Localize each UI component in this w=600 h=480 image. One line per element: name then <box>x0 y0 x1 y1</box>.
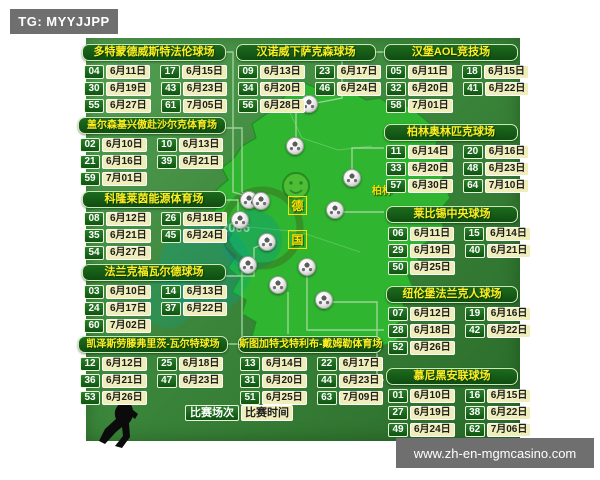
match-number: 62 <box>465 423 485 437</box>
match-entry: 346月20日 <box>238 82 305 96</box>
stadium-title: 法兰克福瓦尔德球场 <box>82 264 226 281</box>
match-date: 6月11日 <box>408 65 452 79</box>
match-entry: 176月15日 <box>160 65 227 79</box>
stadium-title: 柏林奥林匹克球场 <box>384 124 518 141</box>
match-entry: 316月20日 <box>240 374 307 388</box>
match-row: 597月01日 <box>78 172 226 186</box>
match-date: 6月17日 <box>339 357 384 371</box>
match-entry: 336月20日 <box>386 162 453 176</box>
legend-match-number: 比赛场次 <box>185 405 239 421</box>
match-date: 6月23日 <box>485 162 530 176</box>
match-date: 6月14日 <box>262 357 307 371</box>
match-date: 6月14日 <box>486 227 531 241</box>
match-number: 08 <box>84 212 104 226</box>
match-entry: 366月21日 <box>80 374 147 388</box>
match-number: 39 <box>157 155 177 169</box>
match-row: 136月14日226月17日 <box>238 357 382 371</box>
match-row: 066月11日156月14日 <box>386 227 518 241</box>
match-entry: 196月16日 <box>465 307 532 321</box>
stadium-title: 凯泽斯劳滕弗里茨-瓦尔特球场 <box>78 336 228 353</box>
match-row: 046月11日176月15日 <box>82 65 226 79</box>
match-row: 126月12日256月18日 <box>78 357 228 371</box>
match-number: 14 <box>161 285 181 299</box>
match-number: 25 <box>157 357 177 371</box>
match-date: 6月23日 <box>183 82 228 96</box>
match-number: 38 <box>465 406 485 420</box>
match-number: 64 <box>463 179 483 193</box>
match-date: 6月22日 <box>487 324 532 338</box>
match-date: 7月01日 <box>102 172 147 186</box>
match-date: 6月13日 <box>179 138 224 152</box>
match-number: 02 <box>80 138 100 152</box>
match-date: 6月19日 <box>410 406 455 420</box>
soccer-ball-marker-frankfurt <box>258 233 276 251</box>
match-row: 316月20日446月23日 <box>238 374 382 388</box>
match-entry: 576月30日 <box>386 179 453 193</box>
match-date: 6月24日 <box>183 229 228 243</box>
match-date: 6月13日 <box>260 65 305 79</box>
match-date: 6月16日 <box>102 155 147 169</box>
match-number: 26 <box>161 212 181 226</box>
match-entry: 116月14日 <box>386 145 453 159</box>
stadium-card-hamburg: 汉堡AOL竞技场 056月11日186月15日326月20日416月22日587… <box>384 44 518 113</box>
match-number: 56 <box>238 99 258 113</box>
match-date: 6月16日 <box>487 307 532 321</box>
match-date: 6月25日 <box>410 261 455 275</box>
match-number: 15 <box>464 227 484 241</box>
match-date: 6月12日 <box>410 307 455 321</box>
match-number: 20 <box>463 145 483 159</box>
match-row: 326月20日416月22日 <box>384 82 518 96</box>
match-date: 7月01日 <box>408 99 453 113</box>
match-entry: 637月09日 <box>317 391 384 405</box>
stadium-card-kaiserslautern: 凯泽斯劳滕弗里茨-瓦尔特球场 126月12日256月18日366月21日476月… <box>78 336 228 405</box>
match-date: 7月10日 <box>485 179 530 193</box>
match-number: 27 <box>388 406 408 420</box>
match-number: 61 <box>161 99 181 113</box>
match-date: 6月23日 <box>339 374 384 388</box>
match-entry: 456月24日 <box>161 229 228 243</box>
match-row: 346月20日466月24日 <box>236 82 376 96</box>
match-entry: 566月28日 <box>238 99 305 113</box>
match-number: 24 <box>84 302 104 316</box>
match-entry: 356月21日 <box>84 229 151 243</box>
match-date: 6月20日 <box>408 82 453 96</box>
stadium-match-list: 016月10日166月15日276月19日386月22日496月24日627月0… <box>386 389 518 437</box>
soccer-ball-marker-dortmund <box>252 192 270 210</box>
stadium-card-dortmund: 多特蒙德威斯特法伦球场 046月11日176月15日306月19日436月23日… <box>82 44 226 113</box>
match-row: 026月10日106月13日 <box>78 138 226 152</box>
site-watermark: www.zh-en-mgmcasino.com <box>396 438 594 468</box>
match-entry: 076月12日 <box>388 307 455 321</box>
match-entry: 016月10日 <box>388 389 455 403</box>
match-number: 45 <box>161 229 181 243</box>
match-entry: 106月13日 <box>157 138 224 152</box>
match-number: 33 <box>386 162 406 176</box>
legend: 比赛场次 比赛时间 <box>185 405 293 421</box>
stadium-title: 盖尔森基兴傲赴沙尔克体育场 <box>78 117 226 134</box>
stadium-card-leipzig: 莱比锡中央球场 066月11日156月14日296月19日406月21日506月… <box>386 206 518 275</box>
match-date: 6月20日 <box>262 374 307 388</box>
stadium-match-list: 026月10日106月13日216月16日396月21日597月01日 <box>78 138 226 186</box>
match-number: 12 <box>80 357 100 371</box>
country-label-char: 国 <box>288 230 307 249</box>
match-date: 6月10日 <box>410 389 455 403</box>
match-entry: 647月10日 <box>463 179 530 193</box>
match-number: 57 <box>386 179 406 193</box>
stadium-match-list: 136月14日226月17日316月20日446月23日516月25日637月0… <box>238 357 382 405</box>
match-entry: 216月16日 <box>80 155 147 169</box>
match-entry: 386月22日 <box>465 406 532 420</box>
match-date: 6月24日 <box>410 423 455 437</box>
match-row: 276月19日386月22日 <box>386 406 518 420</box>
match-row: 036月10日146月13日 <box>82 285 226 299</box>
match-entry: 046月11日 <box>84 65 150 79</box>
match-entry: 036月10日 <box>84 285 151 299</box>
match-entry: 166月15日 <box>465 389 532 403</box>
match-number: 60 <box>84 319 104 333</box>
match-entry: 206月16日 <box>463 145 530 159</box>
match-number: 06 <box>388 227 408 241</box>
match-entry: 146月13日 <box>161 285 228 299</box>
match-entry: 597月01日 <box>80 172 147 186</box>
match-row: 076月12日196月16日 <box>386 307 518 321</box>
stadium-card-hannover: 汉诺威下萨克森球场 096月13日236月17日346月20日466月24日56… <box>236 44 376 113</box>
match-date: 6月16日 <box>485 145 530 159</box>
match-entry: 096月13日 <box>238 65 305 79</box>
match-date: 6月10日 <box>106 285 151 299</box>
match-number: 55 <box>84 99 104 113</box>
legend-match-time: 比赛时间 <box>241 405 293 421</box>
match-date: 6月17日 <box>106 302 151 316</box>
stadium-match-list: 036月10日146月13日246月17日376月22日607月02日 <box>82 285 226 333</box>
match-date: 6月30日 <box>408 179 453 193</box>
stadium-card-munich: 慕尼黑安联球场 016月10日166月15日276月19日386月22日496月… <box>386 368 518 437</box>
match-date: 6月17日 <box>337 65 382 79</box>
match-date: 6月15日 <box>182 65 227 79</box>
match-row: 056月11日186月15日 <box>384 65 518 79</box>
match-row: 576月30日647月10日 <box>384 179 518 193</box>
stadium-match-list: 116月14日206月16日336月20日486月23日576月30日647月1… <box>384 145 518 193</box>
soccer-ball-marker-cologne <box>231 211 249 229</box>
stadium-card-berlin: 柏林奥林匹克球场 116月14日206月16日336月20日486月23日576… <box>384 124 518 193</box>
match-row: 496月24日627月06日 <box>386 423 518 437</box>
match-row: 536月26日 <box>78 391 228 405</box>
match-number: 22 <box>317 357 337 371</box>
match-entry: 546月27日 <box>84 246 151 260</box>
match-number: 03 <box>84 285 104 299</box>
stadium-match-list: 086月12日266月18日356月21日456月24日546月27日 <box>82 212 226 260</box>
match-number: 37 <box>161 302 181 316</box>
stadium-title: 汉堡AOL竞技场 <box>384 44 518 61</box>
match-number: 16 <box>465 389 485 403</box>
match-entry: 056月11日 <box>386 65 452 79</box>
match-row: 096月13日236月17日 <box>236 65 376 79</box>
match-date: 6月18日 <box>179 357 224 371</box>
match-date: 6月11日 <box>106 65 150 79</box>
stadium-title: 汉诺威下萨克森球场 <box>236 44 376 61</box>
match-date: 6月21日 <box>487 244 532 258</box>
match-date: 6月10日 <box>102 138 147 152</box>
match-number: 34 <box>238 82 258 96</box>
match-number: 43 <box>161 82 181 96</box>
match-number: 10 <box>157 138 177 152</box>
country-label-char: 德 <box>288 196 307 215</box>
match-number: 54 <box>84 246 104 260</box>
match-number: 04 <box>84 65 104 79</box>
match-date: 6月21日 <box>102 374 147 388</box>
soccer-ball-marker-berlin <box>343 169 361 187</box>
match-number: 36 <box>80 374 100 388</box>
match-entry: 156月14日 <box>464 227 531 241</box>
match-row: 546月27日 <box>82 246 226 260</box>
match-number: 35 <box>84 229 104 243</box>
match-number: 01 <box>388 389 408 403</box>
match-row: 607月02日 <box>82 319 226 333</box>
match-entry: 406月21日 <box>465 244 532 258</box>
match-number: 17 <box>160 65 180 79</box>
match-number: 53 <box>80 391 100 405</box>
soccer-ball-marker-hannover <box>286 137 304 155</box>
match-entry: 486月23日 <box>463 162 530 176</box>
match-number: 40 <box>465 244 485 258</box>
match-number: 05 <box>386 65 406 79</box>
match-row: 306月19日436月23日 <box>82 82 226 96</box>
match-date: 6月15日 <box>484 65 529 79</box>
stadium-title: 多特蒙德威斯特法伦球场 <box>82 44 226 61</box>
match-entry: 026月10日 <box>80 138 147 152</box>
match-number: 13 <box>240 357 260 371</box>
match-number: 18 <box>462 65 482 79</box>
soccer-ball-marker-kaiserslautern <box>239 256 257 274</box>
match-entry: 246月17日 <box>84 302 151 316</box>
soccer-ball-marker-stuttgart <box>269 276 287 294</box>
match-number: 29 <box>388 244 408 258</box>
match-date: 6月26日 <box>410 341 455 355</box>
soccer-ball-marker-munich <box>315 291 333 309</box>
match-number: 11 <box>386 145 406 159</box>
match-date: 6月27日 <box>106 246 151 260</box>
match-row: 296月19日406月21日 <box>386 244 518 258</box>
match-entry: 376月22日 <box>161 302 228 316</box>
match-number: 58 <box>386 99 406 113</box>
match-row: 516月25日637月09日 <box>238 391 382 405</box>
match-entry: 587月01日 <box>386 99 453 113</box>
match-row: 246月17日376月22日 <box>82 302 226 316</box>
match-number: 23 <box>315 65 335 79</box>
match-date: 7月09日 <box>339 391 384 405</box>
match-number: 28 <box>388 324 408 338</box>
match-date: 6月28日 <box>260 99 305 113</box>
match-row: 016月10日166月15日 <box>386 389 518 403</box>
match-date: 6月12日 <box>102 357 147 371</box>
match-date: 6月12日 <box>106 212 151 226</box>
match-entry: 426月22日 <box>465 324 532 338</box>
stadium-title: 莱比锡中央球场 <box>386 206 518 223</box>
match-entry: 536月26日 <box>80 391 147 405</box>
match-date: 7月02日 <box>106 319 151 333</box>
stadium-match-list: 066月11日156月14日296月19日406月21日506月25日 <box>386 227 518 275</box>
match-date: 6月21日 <box>106 229 151 243</box>
match-date: 6月22日 <box>485 82 530 96</box>
match-number: 52 <box>388 341 408 355</box>
match-entry: 286月18日 <box>388 324 455 338</box>
match-date: 6月27日 <box>106 99 151 113</box>
stadium-match-list: 096月13日236月17日346月20日466月24日566月28日 <box>236 65 376 113</box>
soccer-ball-marker-leipzig <box>326 201 344 219</box>
match-row: 086月12日266月18日 <box>82 212 226 226</box>
match-date: 6月21日 <box>179 155 224 169</box>
match-row: 116月14日206月16日 <box>384 145 518 159</box>
match-row: 587月01日 <box>384 99 518 113</box>
match-entry: 276月19日 <box>388 406 455 420</box>
stadium-title: 纽伦堡法兰克人球场 <box>386 286 518 303</box>
match-entry: 066月11日 <box>388 227 454 241</box>
match-entry: 136月14日 <box>240 357 307 371</box>
stadium-card-stuttgart: 斯图加特戈特利布-戴姆勒体育场 136月14日226月17日316月20日446… <box>238 336 382 405</box>
match-entry: 556月27日 <box>84 99 151 113</box>
match-number: 47 <box>157 374 177 388</box>
poster: TG: MYYJJPP 2006 <box>0 0 600 480</box>
match-entry: 236月17日 <box>315 65 382 79</box>
soccer-ball-marker-nuremberg <box>298 258 316 276</box>
match-number: 32 <box>386 82 406 96</box>
match-date: 6月18日 <box>410 324 455 338</box>
match-number: 09 <box>238 65 258 79</box>
match-date: 6月20日 <box>408 162 453 176</box>
match-date: 6月22日 <box>487 406 532 420</box>
match-date: 6月18日 <box>183 212 228 226</box>
match-entry: 296月19日 <box>388 244 455 258</box>
match-number: 44 <box>317 374 337 388</box>
match-entry: 466月24日 <box>315 82 382 96</box>
match-date: 6月20日 <box>260 82 305 96</box>
stadium-match-list: 046月11日176月15日306月19日436月23日556月27日617月0… <box>82 65 226 113</box>
match-number: 42 <box>465 324 485 338</box>
match-number: 59 <box>80 172 100 186</box>
match-number: 63 <box>317 391 337 405</box>
match-number: 41 <box>463 82 483 96</box>
stadium-title: 慕尼黑安联球场 <box>386 368 518 385</box>
match-entry: 416月22日 <box>463 82 530 96</box>
match-entry: 086月12日 <box>84 212 151 226</box>
match-row: 556月27日617月05日 <box>82 99 226 113</box>
match-date: 6月26日 <box>102 391 147 405</box>
match-row: 216月16日396月21日 <box>78 155 226 169</box>
match-entry: 256月18日 <box>157 357 224 371</box>
match-date: 6月19日 <box>410 244 455 258</box>
stadium-match-list: 056月11日186月15日326月20日416月22日587月01日 <box>384 65 518 113</box>
match-row: 356月21日456月24日 <box>82 229 226 243</box>
stadium-title: 科隆莱茵能源体育场 <box>82 191 226 208</box>
match-entry: 186月15日 <box>462 65 529 79</box>
match-entry: 266月18日 <box>161 212 228 226</box>
stadium-card-nuremberg: 纽伦堡法兰克人球场 076月12日196月16日286月18日426月22日52… <box>386 286 518 355</box>
match-number: 31 <box>240 374 260 388</box>
tg-badge: TG: MYYJJPP <box>10 9 118 34</box>
match-date: 7月05日 <box>183 99 228 113</box>
match-number: 50 <box>388 261 408 275</box>
match-date: 6月23日 <box>179 374 224 388</box>
match-date: 6月25日 <box>262 391 307 405</box>
match-date: 6月13日 <box>183 285 228 299</box>
match-number: 48 <box>463 162 483 176</box>
match-number: 49 <box>388 423 408 437</box>
stadium-card-cologne: 科隆莱茵能源体育场 086月12日266月18日356月21日456月24日54… <box>82 191 226 260</box>
match-row: 506月25日 <box>386 261 518 275</box>
match-number: 21 <box>80 155 100 169</box>
match-number: 46 <box>315 82 335 96</box>
match-number: 07 <box>388 307 408 321</box>
match-entry: 226月17日 <box>317 357 384 371</box>
stadium-title: 斯图加特戈特利布-戴姆勒体育场 <box>238 336 382 353</box>
match-number: 51 <box>240 391 260 405</box>
match-entry: 627月06日 <box>465 423 532 437</box>
match-entry: 446月23日 <box>317 374 384 388</box>
match-entry: 476月23日 <box>157 374 224 388</box>
match-entry: 306月19日 <box>84 82 151 96</box>
match-date: 7月06日 <box>487 423 532 437</box>
match-row: 566月28日 <box>236 99 376 113</box>
match-row: 366月21日476月23日 <box>78 374 228 388</box>
match-entry: 607月02日 <box>84 319 151 333</box>
stadium-match-list: 126月12日256月18日366月21日476月23日536月26日 <box>78 357 228 405</box>
match-date: 6月11日 <box>410 227 454 241</box>
match-date: 6月22日 <box>183 302 228 316</box>
match-entry: 496月24日 <box>388 423 455 437</box>
stadium-card-gelsenkirchen: 盖尔森基兴傲赴沙尔克体育场 026月10日106月13日216月16日396月2… <box>78 117 226 186</box>
match-number: 19 <box>465 307 485 321</box>
match-row: 526月26日 <box>386 341 518 355</box>
match-entry: 516月25日 <box>240 391 307 405</box>
match-row: 286月18日426月22日 <box>386 324 518 338</box>
stadium-card-frankfurt: 法兰克福瓦尔德球场 036月10日146月13日246月17日376月22日60… <box>82 264 226 333</box>
stadium-match-list: 076月12日196月16日286月18日426月22日526月26日 <box>386 307 518 355</box>
match-entry: 326月20日 <box>386 82 453 96</box>
match-entry: 617月05日 <box>161 99 228 113</box>
match-row: 336月20日486月23日 <box>384 162 518 176</box>
match-date: 6月19日 <box>106 82 151 96</box>
match-entry: 126月12日 <box>80 357 147 371</box>
match-number: 30 <box>84 82 104 96</box>
match-entry: 526月26日 <box>388 341 455 355</box>
match-entry: 506月25日 <box>388 261 455 275</box>
match-date: 6月14日 <box>408 145 453 159</box>
match-date: 6月15日 <box>487 389 532 403</box>
match-date: 6月24日 <box>337 82 382 96</box>
match-entry: 396月21日 <box>157 155 224 169</box>
match-entry: 436月23日 <box>161 82 228 96</box>
